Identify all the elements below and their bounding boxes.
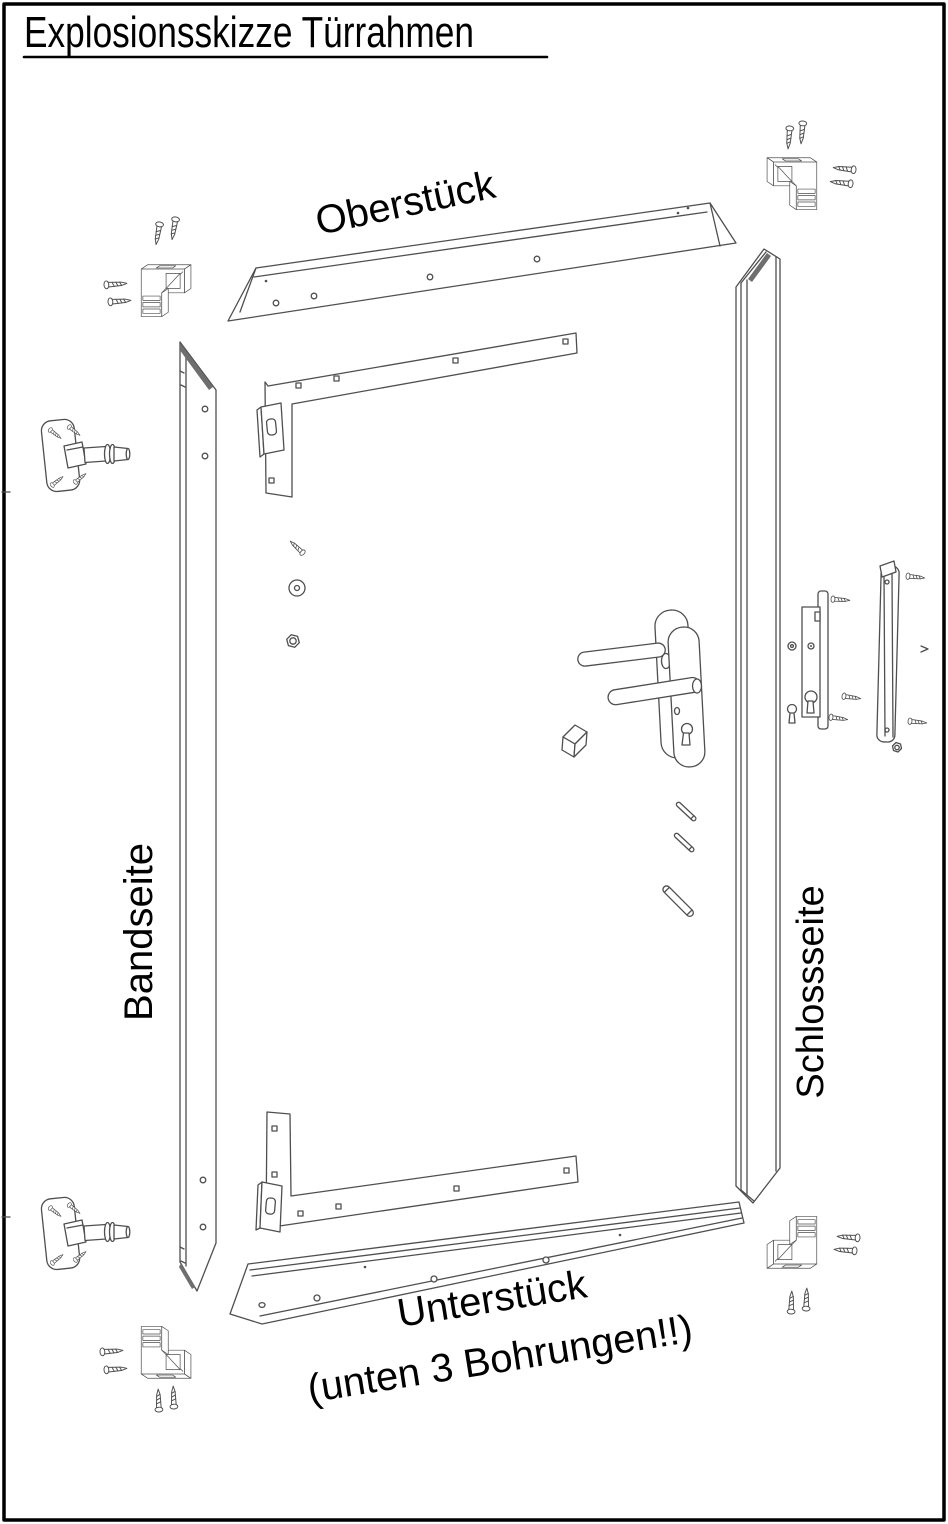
corner-connector-bottom-left [100, 1326, 191, 1412]
hinge-bottom [40, 1196, 129, 1270]
corner-connector-bottom-right [767, 1216, 860, 1314]
drawing-sheet: Explosionsskizze Türrahmen [0, 0, 948, 1524]
screw-icon [152, 221, 164, 245]
screw-icon [837, 1233, 860, 1242]
screw-icon [829, 714, 849, 723]
screw-icon [830, 178, 854, 188]
screw-icon [787, 1291, 796, 1314]
lever-handle-upper [577, 642, 666, 667]
top-piece-panel [228, 203, 736, 321]
handle-backplate-front [667, 626, 705, 767]
bolt [288, 539, 306, 557]
screw-icon [108, 297, 131, 306]
corner-connector-top-right [767, 121, 856, 210]
bottom-angle-bracket [256, 1112, 578, 1232]
washer [289, 580, 305, 596]
exploded-diagram: Explosionsskizze Türrahmen [0, 0, 948, 1524]
screw-icon [104, 1365, 127, 1374]
mortise-lock [802, 591, 861, 729]
screw-icon [154, 1389, 163, 1412]
screw-icon [834, 1246, 857, 1255]
top-angle-bracket [257, 333, 577, 497]
screw-icon [168, 216, 180, 240]
label-hinge-side: Bandseite [117, 843, 161, 1021]
strike-plate [877, 561, 928, 752]
screw-icon [784, 126, 794, 149]
hinge-side-rail [179, 342, 216, 1291]
label-top-piece: Oberstück [312, 163, 500, 244]
cylinder-parts [788, 642, 797, 723]
hinge-top [40, 418, 129, 492]
screw-icon [802, 1288, 811, 1311]
lock-side-rail [736, 249, 780, 1203]
hex-nut [287, 635, 300, 648]
screw-icon [842, 693, 862, 702]
dowel-pins [661, 801, 696, 917]
door-handle-set [562, 609, 706, 767]
small-fasteners [287, 539, 306, 648]
screw-icon [833, 164, 857, 174]
page-title: Explosionsskizze Türrahmen [24, 8, 474, 57]
spindle-block [562, 725, 587, 757]
screw-icon [169, 1386, 178, 1409]
corner-connector-top-left [104, 216, 191, 316]
label-bottom-note: (unten 3 Bohrungen!!) [304, 1307, 695, 1411]
screw-icon [104, 280, 127, 289]
screw-tip [921, 646, 928, 652]
screw-icon [797, 121, 807, 144]
screw-icon [908, 718, 927, 726]
screw-icon [100, 1347, 123, 1356]
screw-icon [906, 573, 925, 581]
screw-icon [831, 596, 850, 604]
hex-nut [893, 743, 902, 753]
label-lock-side: Schlossseite [790, 885, 832, 1098]
